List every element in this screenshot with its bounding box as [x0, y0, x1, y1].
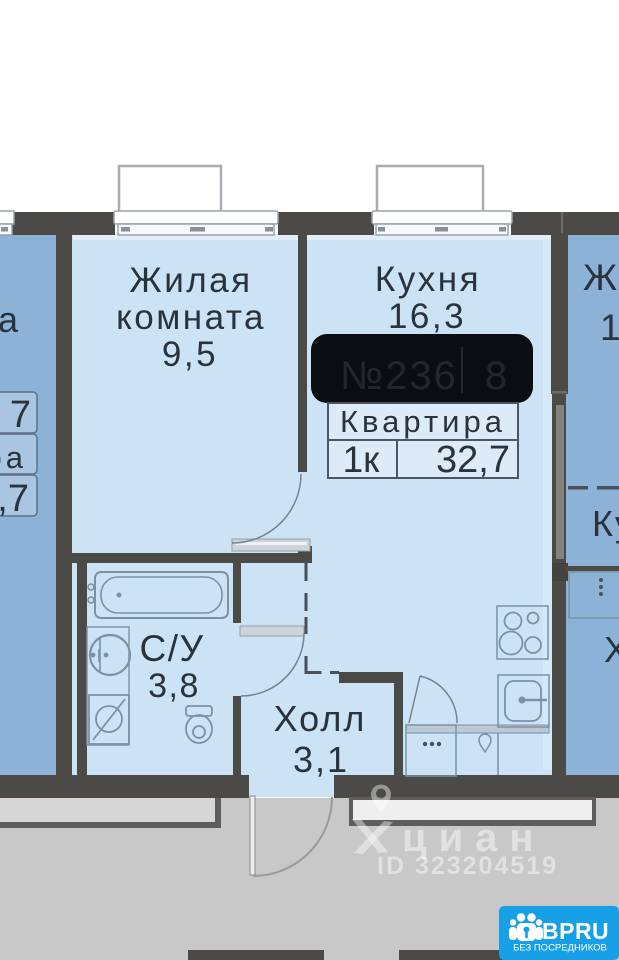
svg-text:1к: 1к: [343, 439, 381, 480]
svg-text:ID 323204519: ID 323204519: [377, 852, 558, 880]
svg-text:Жилая: Жилая: [129, 261, 252, 300]
svg-text:С/У: С/У: [139, 628, 204, 669]
svg-text:ната: ната: [0, 299, 19, 340]
svg-text:16,3: 16,3: [388, 297, 466, 336]
svg-text:8: 8: [485, 354, 507, 398]
svg-text:Кухня: Кухня: [375, 260, 481, 299]
svg-text:Холл: Холл: [274, 698, 367, 739]
svg-text:ра: ра: [0, 440, 27, 475]
svg-text:Квартира: Квартира: [340, 404, 506, 439]
svg-text:7: 7: [10, 394, 31, 436]
svg-text:BPRU: BPRU: [542, 918, 609, 944]
svg-text:2,7: 2,7: [0, 478, 29, 520]
svg-text:9,5: 9,5: [162, 335, 218, 374]
svg-text:№236: №236: [340, 354, 458, 398]
svg-text:3,8: 3,8: [148, 667, 200, 705]
svg-text:Жи: Жи: [583, 257, 619, 298]
svg-text:комната: комната: [116, 298, 266, 337]
svg-text:Кух: Кух: [592, 503, 619, 544]
svg-text:3,1: 3,1: [293, 739, 349, 780]
svg-text:Хо: Хо: [604, 629, 619, 670]
svg-text:10,: 10,: [600, 307, 619, 348]
svg-text:БЕЗ ПОСРЕДНИКОВ: БЕЗ ПОСРЕДНИКОВ: [513, 943, 607, 954]
svg-text:32,7: 32,7: [436, 439, 510, 481]
